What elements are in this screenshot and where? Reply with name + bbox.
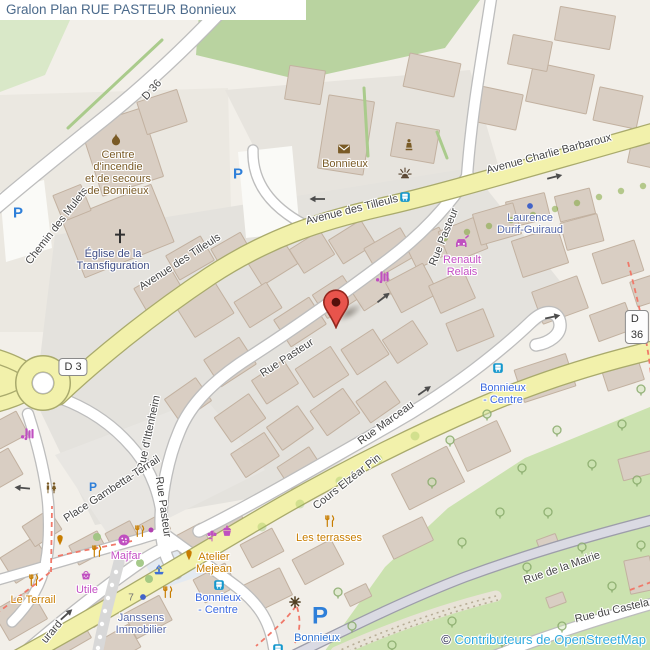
tree-icon bbox=[558, 622, 566, 630]
tree-icon bbox=[388, 641, 396, 649]
street-tree-icon bbox=[374, 455, 383, 464]
attribution-link[interactable]: Contributeurs de OpenStreetMap bbox=[455, 632, 647, 647]
tree-icon bbox=[618, 420, 626, 428]
parking-icon: P bbox=[89, 480, 97, 494]
building bbox=[390, 122, 439, 163]
street-tree-icon bbox=[552, 206, 558, 212]
tree-icon bbox=[553, 426, 561, 434]
steps-dot bbox=[114, 570, 118, 574]
street-tree-icon bbox=[640, 183, 646, 189]
tree-icon bbox=[637, 385, 645, 393]
map-attribution[interactable]: © Contributeurs de OpenStreetMap bbox=[441, 632, 646, 647]
tree-icon bbox=[518, 464, 526, 472]
steps-dot bbox=[100, 622, 104, 626]
tree-icon bbox=[608, 582, 616, 590]
map-viewport[interactable]: PPPP7 D 36Chemin des MuletsAvenue des Ti… bbox=[0, 0, 650, 650]
bus-icon bbox=[214, 580, 224, 590]
steps-dot bbox=[96, 646, 100, 650]
bus-icon bbox=[273, 644, 283, 650]
tree-icon bbox=[633, 476, 641, 484]
street-tree-icon bbox=[442, 235, 448, 241]
map-marker[interactable] bbox=[322, 289, 350, 329]
tree-icon bbox=[334, 588, 342, 596]
parking-icon: P bbox=[233, 166, 243, 183]
tree-icon bbox=[637, 541, 645, 549]
copyright-symbol: © bbox=[441, 632, 451, 647]
parking-icon: P bbox=[13, 205, 23, 222]
tree-icon bbox=[136, 559, 144, 567]
steps-dot bbox=[98, 635, 102, 639]
dot-icon bbox=[149, 528, 154, 533]
parking-icon: P bbox=[312, 603, 328, 630]
house-number: 7 bbox=[128, 593, 134, 604]
tree-icon bbox=[458, 538, 466, 546]
tree-icon bbox=[348, 622, 356, 630]
street-tree-icon bbox=[574, 200, 580, 206]
tree-icon bbox=[496, 508, 504, 516]
windmill-icon bbox=[290, 597, 300, 607]
dot-icon bbox=[527, 203, 533, 209]
tree-icon bbox=[145, 575, 153, 583]
roundabout-island bbox=[33, 373, 54, 394]
street-tree-icon bbox=[530, 212, 536, 218]
envelope-icon bbox=[338, 145, 350, 154]
street-tree-icon bbox=[296, 500, 305, 509]
steps-dot bbox=[103, 609, 107, 613]
tree-icon bbox=[448, 617, 456, 625]
dot-icon bbox=[140, 594, 146, 600]
street-tree-icon bbox=[618, 188, 624, 194]
street-tree-icon bbox=[596, 194, 602, 200]
tree-icon bbox=[578, 543, 586, 551]
page-title: Gralon Plan RUE PASTEUR Bonnieux bbox=[0, 0, 306, 20]
bus-icon bbox=[493, 363, 503, 373]
steps-dot bbox=[110, 583, 114, 587]
street-tree-icon bbox=[464, 229, 470, 235]
street-tree-icon bbox=[258, 523, 267, 532]
pizza-icon bbox=[118, 534, 129, 545]
bus-icon bbox=[400, 192, 410, 202]
tree-icon bbox=[428, 478, 436, 486]
tree-icon bbox=[483, 410, 491, 418]
building bbox=[285, 65, 326, 104]
street-tree-icon bbox=[508, 217, 514, 223]
street-tree-icon bbox=[486, 223, 492, 229]
tree-icon bbox=[446, 436, 454, 444]
steps-dot bbox=[106, 596, 110, 600]
street-tree-icon bbox=[411, 432, 420, 441]
tree-icon bbox=[523, 563, 531, 571]
tree-icon bbox=[588, 460, 596, 468]
tree-icon bbox=[544, 508, 552, 516]
street-tree-icon bbox=[336, 477, 345, 486]
tree-icon bbox=[93, 533, 101, 541]
